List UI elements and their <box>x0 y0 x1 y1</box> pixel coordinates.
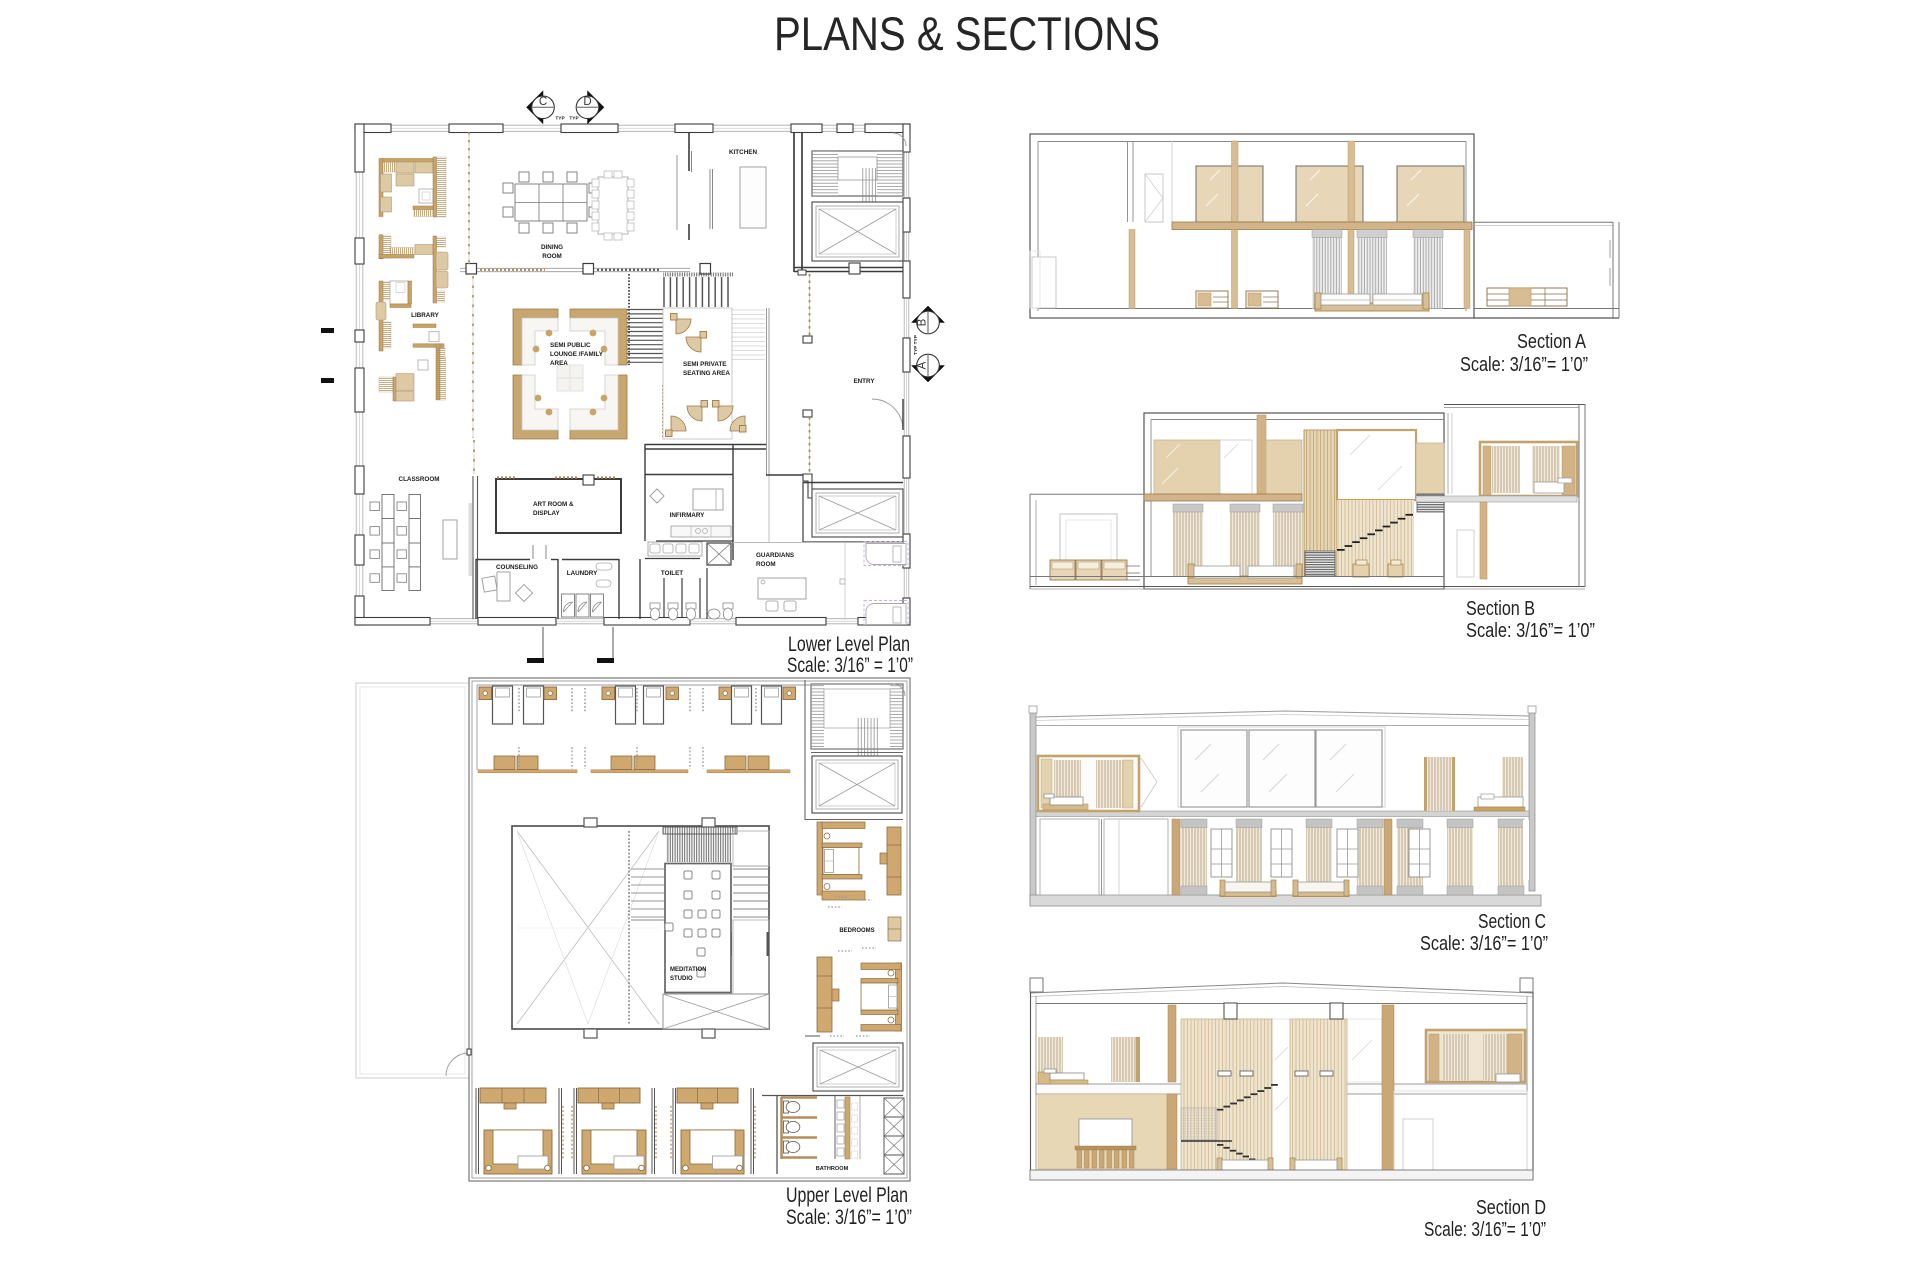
svg-text:TYP TYP: TYP TYP <box>913 334 919 355</box>
svg-text:BATHROOM: BATHROOM <box>816 1166 849 1172</box>
svg-text:B: B <box>917 318 929 326</box>
svg-text:KITCHEN: KITCHEN <box>729 149 757 156</box>
svg-text:Scale: 3/16”= 1’0”: Scale: 3/16”= 1’0” <box>1460 354 1588 376</box>
svg-text:Lower Level Plan: Lower Level Plan <box>788 633 910 656</box>
svg-text:ENTRY: ENTRY <box>853 378 875 385</box>
svg-text:TOILET: TOILET <box>661 570 683 577</box>
svg-text:Upper Level Plan: Upper Level Plan <box>786 1184 908 1207</box>
svg-text:INFIRMARY: INFIRMARY <box>670 512 706 519</box>
svg-text:A: A <box>917 361 929 369</box>
svg-text:Section A: Section A <box>1517 331 1587 353</box>
svg-text:SEATING AREA: SEATING AREA <box>683 370 730 377</box>
svg-text:D: D <box>583 96 591 108</box>
svg-text:DINING: DINING <box>541 244 563 251</box>
svg-text:ART ROOM &: ART ROOM & <box>533 501 574 508</box>
svg-text:CLASSROOM: CLASSROOM <box>399 476 440 483</box>
svg-text:AREA: AREA <box>550 360 568 367</box>
svg-text:LAUNDRY: LAUNDRY <box>567 570 598 577</box>
svg-text:BEDROOMS: BEDROOMS <box>839 928 874 934</box>
svg-text:Scale: 3/16” = 1’0”: Scale: 3/16” = 1’0” <box>787 654 913 677</box>
svg-text:Scale: 3/16”= 1’0”: Scale: 3/16”= 1’0” <box>1420 933 1548 955</box>
svg-text:TYP: TYP <box>569 116 579 122</box>
svg-text:Section B: Section B <box>1466 598 1535 620</box>
svg-text:SEMI PUBLIC: SEMI PUBLIC <box>550 342 591 349</box>
svg-text:Section C: Section C <box>1478 911 1546 933</box>
svg-text:LOUNGE /FAMILY: LOUNGE /FAMILY <box>550 351 604 358</box>
svg-text:ROOM: ROOM <box>756 561 776 568</box>
svg-text:Scale: 3/16”= 1’0”: Scale: 3/16”= 1’0” <box>786 1206 912 1229</box>
svg-text:TYP: TYP <box>555 116 565 122</box>
svg-text:SEMI PRIVATE: SEMI PRIVATE <box>683 361 727 368</box>
svg-text:DISPLAY: DISPLAY <box>533 510 561 517</box>
svg-text:MEDITATION: MEDITATION <box>670 967 706 973</box>
svg-text:PLANS & SECTIONS: PLANS & SECTIONS <box>774 7 1160 60</box>
svg-text:Scale: 3/16”= 1’0”: Scale: 3/16”= 1’0” <box>1424 1219 1546 1241</box>
svg-text:C: C <box>539 96 547 108</box>
svg-text:Section D: Section D <box>1476 1197 1546 1219</box>
svg-text:ROOM: ROOM <box>542 253 562 260</box>
svg-text:Scale: 3/16”= 1’0”: Scale: 3/16”= 1’0” <box>1466 620 1595 642</box>
svg-text:STUDIO: STUDIO <box>670 976 693 982</box>
svg-text:GUARDIANS: GUARDIANS <box>756 552 794 559</box>
svg-text:COUNSELING: COUNSELING <box>496 564 538 571</box>
svg-text:LIBRARY: LIBRARY <box>411 312 440 319</box>
